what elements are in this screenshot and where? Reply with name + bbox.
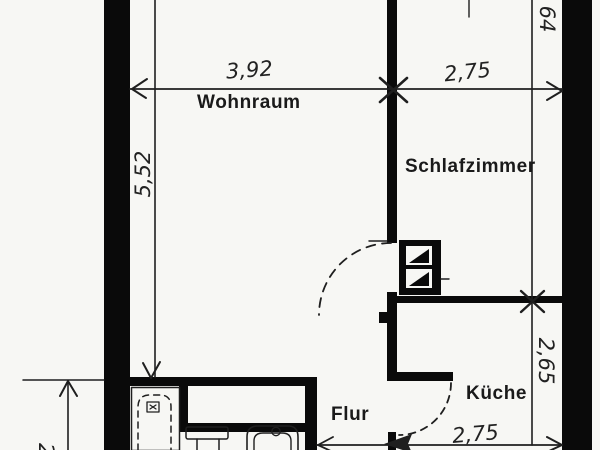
dim-label-kitchen-height: 2,65 <box>534 328 558 394</box>
arrow-down-icon <box>143 362 160 378</box>
dim-label-kitchen-width: 2,75 <box>451 420 500 448</box>
arrow-left-icon <box>318 437 333 450</box>
dim-label-bottom-left-partial: 2, <box>34 433 58 450</box>
arrow-right-icon <box>547 437 562 450</box>
dim-label-bedroom-width: 2,75 <box>443 58 492 87</box>
room-label-hall: Flur <box>331 404 369 426</box>
floor-plan: Wohnraum Schlafzimmer Küche Flur 3,92 2,… <box>0 0 600 450</box>
bathtub-icon <box>132 388 180 450</box>
dim-label-top-right-offset: 64 <box>535 2 559 36</box>
ventilation-shaft-icon <box>399 240 449 295</box>
room-label-bedroom: Schlafzimmer <box>405 156 536 178</box>
dim-label-living-width: 3,92 <box>225 56 273 83</box>
toilet-icon <box>247 426 298 450</box>
room-label-kitchen: Küche <box>466 383 527 405</box>
arrow-right-icon <box>547 82 562 100</box>
bedroom-door-arc <box>319 243 391 315</box>
room-label-living: Wohnraum <box>197 92 301 114</box>
dim-tick-x-icon <box>380 78 407 102</box>
kitchen-door-arc <box>399 383 451 435</box>
arrow-bold-left-icon <box>384 434 412 450</box>
washbasin-icon <box>186 427 228 450</box>
dim-label-living-height: 5,52 <box>131 138 155 210</box>
